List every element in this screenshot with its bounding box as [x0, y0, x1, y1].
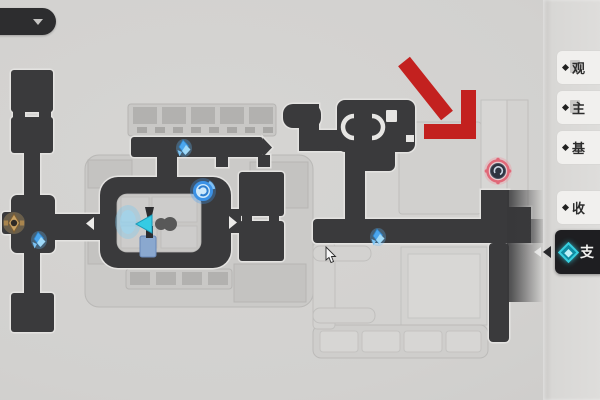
diamond-bullet-icon [562, 204, 569, 211]
diamond-bullet-icon [562, 64, 569, 71]
space-anchor-icon[interactable] [190, 178, 216, 204]
teleport-spark-icon[interactable] [176, 139, 192, 157]
teleport-gem-icon [558, 241, 579, 262]
legend-item-4-selected[interactable]: 支 [555, 230, 600, 274]
map-title-pill[interactable] [0, 8, 56, 35]
red-ring-marker-icon[interactable] [484, 157, 512, 185]
legend-panel: 观 主 基 收 支 [543, 0, 600, 400]
diamond-bullet-icon [562, 144, 569, 151]
legend-label: 收 [572, 198, 585, 217]
teleport-spark-icon[interactable] [31, 231, 47, 249]
gold-emblem-icon[interactable] [3, 212, 25, 234]
legend-label: 基 [572, 138, 585, 157]
chevron-left-ghost-icon [534, 247, 541, 257]
legend-item-3[interactable]: 收 [557, 191, 600, 224]
legend-label: 观 [572, 58, 585, 77]
legend-item-1[interactable]: 主 [557, 91, 600, 124]
map-screen: 观 主 基 收 支 [0, 0, 600, 400]
legend-item-0[interactable]: 观 [557, 51, 600, 84]
legend-item-2[interactable]: 基 [557, 131, 600, 164]
legend-label: 支 [580, 242, 594, 262]
legend-label: 主 [572, 98, 585, 117]
diamond-bullet-icon [562, 104, 569, 111]
dropdown-triangle-icon [33, 19, 43, 25]
teleport-spark-icon[interactable] [370, 228, 386, 246]
map-canvas[interactable] [0, 0, 600, 400]
arrow-left-icon [543, 246, 551, 258]
